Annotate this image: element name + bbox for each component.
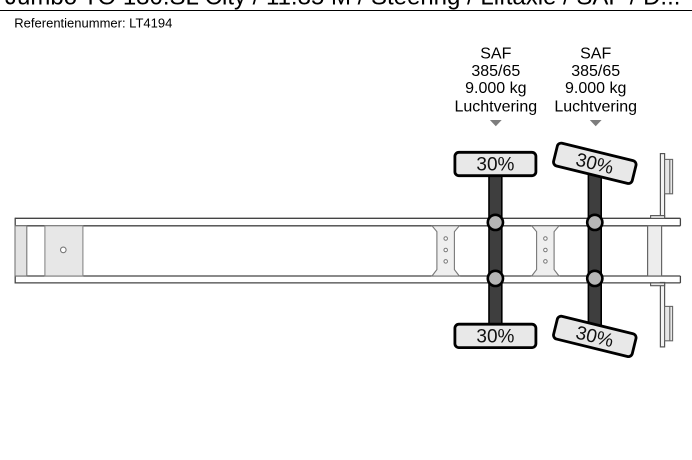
svg-text:Luchtvering: Luchtvering: [454, 99, 537, 116]
svg-text:385/65: 385/65: [571, 63, 620, 80]
svg-text:30%: 30%: [476, 326, 514, 347]
svg-text:30%: 30%: [476, 155, 514, 176]
svg-text:Referentienummer: LT4194: Referentienummer: LT4194: [14, 15, 172, 30]
svg-text:Luchtvering: Luchtvering: [554, 99, 637, 116]
svg-text:9.000 kg: 9.000 kg: [465, 80, 526, 97]
svg-text:Jumbo TO 130.SL City / 11.35 M: Jumbo TO 130.SL City / 11.35 M / Steerin…: [5, 0, 680, 10]
svg-text:SAF: SAF: [580, 46, 611, 63]
svg-text:385/65: 385/65: [471, 63, 520, 80]
svg-text:9.000 kg: 9.000 kg: [565, 80, 626, 97]
svg-text:SAF: SAF: [480, 46, 511, 63]
